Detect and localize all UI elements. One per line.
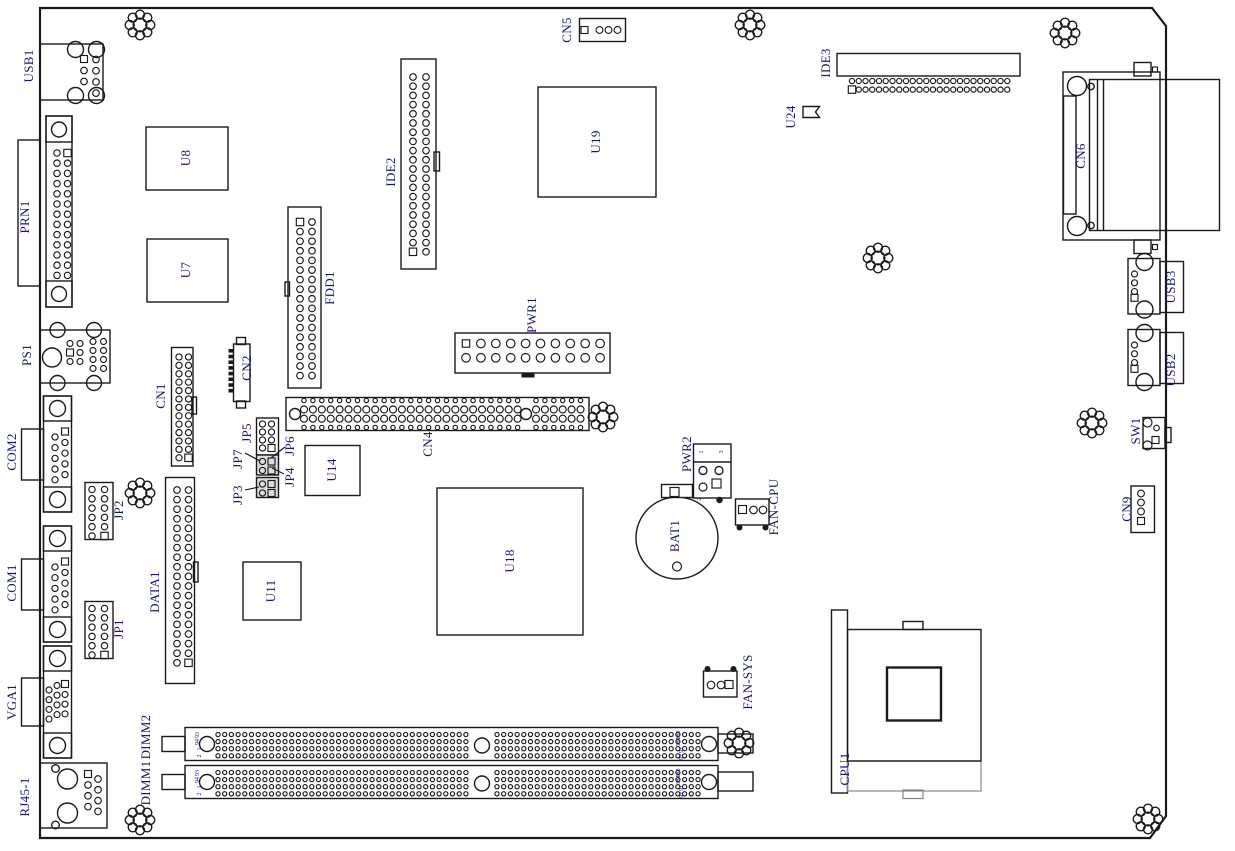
cn1-header [172,348,197,467]
label-jp6: JP6 [282,436,298,456]
label-vga1: VGA1 [4,684,20,720]
label-u18: U18 [502,549,518,572]
pin-number: 184 [676,776,682,785]
label-fdd1: FDD1 [322,271,338,305]
pin-number: 184 [676,738,682,747]
label-u11: U11 [263,580,279,603]
pin-number: 93 [195,732,201,738]
label-bat1: BAT1 [667,520,683,552]
label-com1: COM1 [4,564,20,601]
pin-number: 93 [195,770,201,776]
label-usb3: USB3 [1163,271,1179,304]
label-com2: COM2 [4,433,20,470]
label-jp4: JP4 [282,467,298,487]
label-cn5: CN5 [559,17,575,42]
label-dimm1: DIMM1 [138,761,154,806]
rj45-connector [40,763,107,829]
pin-number: 3 [719,451,725,454]
label-u7: U7 [178,262,194,279]
label-pwr2: PWR2 [679,436,695,472]
mounting-holes [125,10,1163,835]
label-jp7: JP7 [230,449,246,469]
label-data1: DATA1 [147,571,163,613]
label-ide3: IDE3 [818,48,834,77]
label-cn1: CN1 [153,383,169,408]
label-cn2: CN2 [239,355,255,380]
label-ps1: PS1 [19,344,35,366]
cpu1-socket [832,610,982,799]
motherboard-layout-diagram: USB1 PRN1 PS1 COM2 COM1 VGA1 RJ45-1 JP2 … [0,0,1235,851]
label-cn6: CN6 [1073,143,1089,168]
label-usb1: USB1 [21,50,37,83]
label-ide2: IDE2 [383,157,399,186]
label-fan-cpu: FAN-CPU [766,479,782,536]
label-cn9: CN9 [1119,496,1135,521]
label-cn4: CN4 [420,431,436,456]
chip-u24 [803,107,820,118]
pin-number: 2 [697,498,703,501]
com1-connector [22,526,72,642]
label-u24: U24 [783,105,799,128]
data1-header [166,478,199,684]
com2-connector [22,396,72,512]
pin-number: 1 [197,786,203,789]
pin-number: 91 [679,785,685,791]
label-jp5: JP5 [239,423,255,443]
label-prn1: PRN1 [17,201,33,234]
label-usb2: USB2 [1163,354,1179,387]
pin-number: 2 [197,755,203,758]
label-u19: U19 [588,130,604,153]
pin-number: 92 [679,792,685,798]
label-dimm2: DIMM2 [138,715,154,760]
label-sw1: SW1 [1128,418,1144,445]
pin-number: 94 [195,739,201,745]
pin-number: 92 [679,754,685,760]
usb1-connector [40,42,105,104]
label-u14: U14 [324,458,340,481]
label-u8: U8 [178,150,194,167]
pin-number: 2 [197,793,203,796]
pin-number: 91 [679,747,685,753]
ide2-header [401,59,440,269]
ide3-connector [837,54,1020,77]
ps1-connector [40,323,110,391]
label-pwr1: PWR1 [524,297,540,333]
fan-cpu-connector [736,499,770,531]
board-drawing [0,0,1235,851]
pin-number: 1 [699,451,705,454]
label-fan-sys: FAN-SYS [740,654,756,709]
label-jp2: JP2 [111,500,127,520]
label-cpu1: CPU1 [837,753,853,786]
pin-number: 1 [197,748,203,751]
label-jp1: JP1 [111,619,127,639]
label-jp3: JP3 [230,485,246,505]
pin-number: 94 [195,777,201,783]
label-rj45: RJ45-1 [17,777,33,816]
